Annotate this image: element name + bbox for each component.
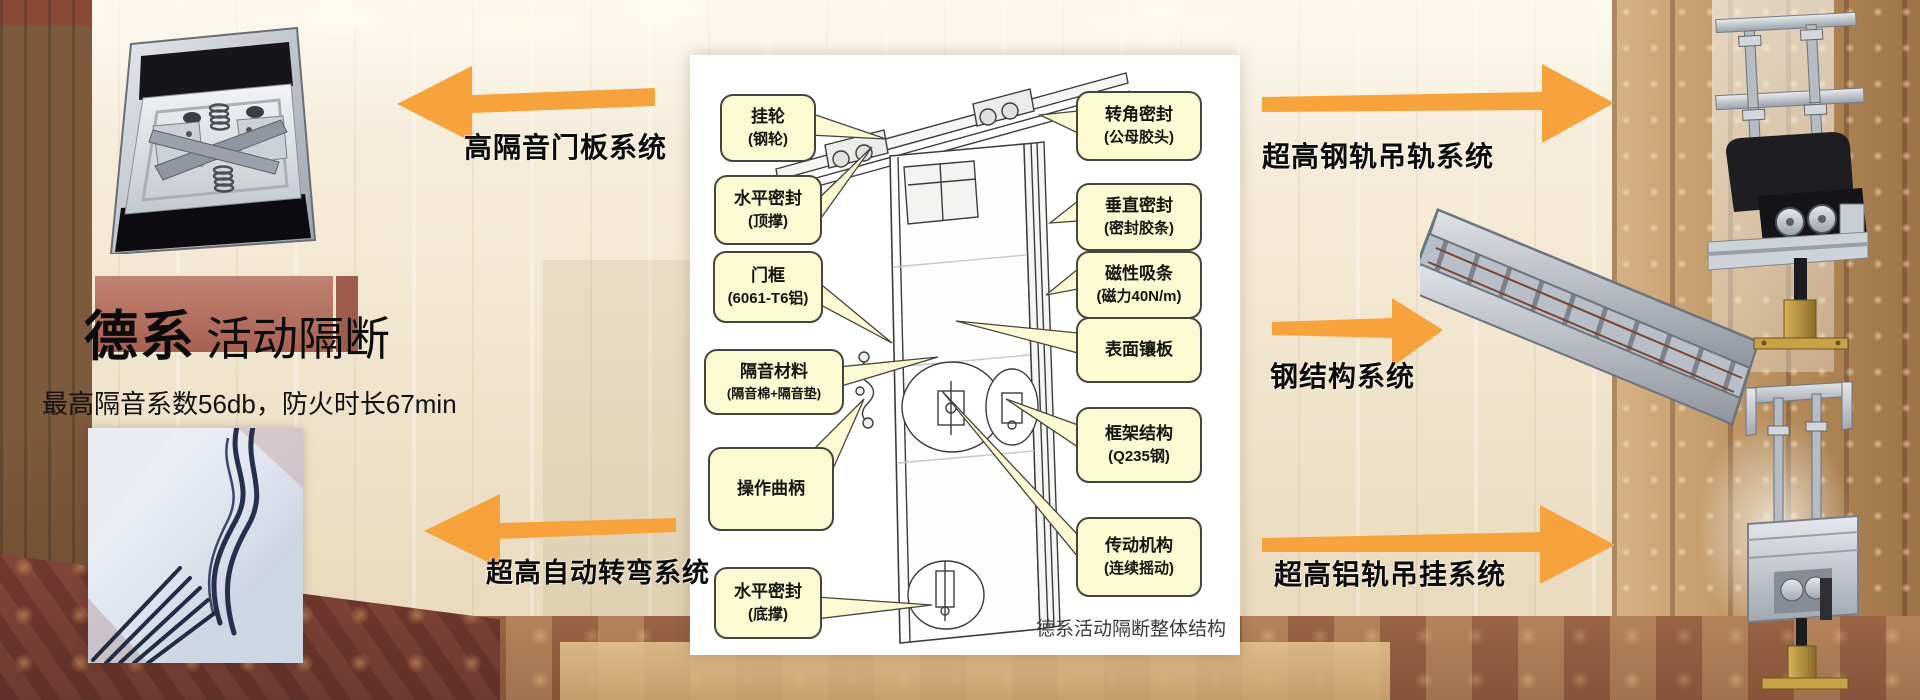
label-steel-rail-system: 超高钢轨吊轨系统 <box>1262 135 1494 175</box>
photo-curved-track <box>88 428 303 663</box>
callout-text: (底撑) <box>748 604 788 626</box>
callout-corner-seal: 转角密封 (公母胶头) <box>1076 91 1202 161</box>
callout-text: 框架结构 <box>1105 422 1173 447</box>
callout-text: 挂轮 <box>751 105 785 130</box>
callout-magnetic-strip: 磁性吸条 (磁力40N/m) <box>1076 251 1202 319</box>
partition-product-poster: 高隔音门板系统 超高自动转弯系统 超高钢轨吊轨系统 钢结构系统 超高铝轨吊挂系统… <box>0 0 1920 700</box>
callout-text: 垂直密封 <box>1105 194 1173 219</box>
callout-text: 水平密封 <box>734 187 802 212</box>
callout-text: 表面镶板 <box>1105 338 1173 363</box>
callout-text: (密封胶条) <box>1104 218 1174 240</box>
callout-hanging-wheel: 挂轮 (钢轮) <box>720 94 816 162</box>
callout-text: (钢轮) <box>748 129 788 151</box>
callout-horizontal-seal-bottom: 水平密封 (底撑) <box>714 567 822 639</box>
callout-door-frame: 门框 (6061-T6铝) <box>713 251 823 323</box>
label-door-panel-system: 高隔音门板系统 <box>464 126 667 166</box>
callout-text: (磁力40N/m) <box>1096 286 1181 308</box>
callout-text: (隔音棉+隔音垫) <box>727 385 821 404</box>
callout-transmission-mechanism: 传动机构 (连续摇动) <box>1076 517 1202 597</box>
callout-sound-insulation-material: 隔音材料 (隔音棉+隔音垫) <box>704 349 844 415</box>
label-auto-turn-system: 超高自动转弯系统 <box>486 551 710 590</box>
callout-operating-crank: 操作曲柄 <box>708 447 834 531</box>
callout-text: (顶撑) <box>748 211 788 233</box>
callout-text: (6061-T6铝) <box>728 288 809 310</box>
callout-text: 磁性吸条 <box>1105 262 1173 287</box>
callout-text: 水平密封 <box>734 580 802 605</box>
subtitle-specs: 最高隔音系数56db，防火时长67min <box>42 384 457 421</box>
callout-text: 传动机构 <box>1105 534 1173 559</box>
callout-text: 转角密封 <box>1105 103 1173 128</box>
callout-frame-structure: 框架结构 (Q235钢) <box>1076 407 1202 483</box>
photo-alu-rail-trolley <box>1728 382 1878 692</box>
callout-text: 门框 <box>751 264 785 289</box>
callout-text: 操作曲柄 <box>737 477 805 502</box>
callout-text: (连续摇动) <box>1104 558 1174 580</box>
product-name: 活动隔断 <box>206 303 390 369</box>
label-alu-rail-system: 超高铝轨吊挂系统 <box>1274 553 1506 593</box>
brand-name: 德系 <box>84 292 196 371</box>
callout-text: (Q235钢) <box>1108 446 1170 468</box>
callout-text: 隔音材料 <box>740 360 808 385</box>
callout-text: (公母胶头) <box>1104 127 1174 149</box>
diagram-caption: 德系活动隔断整体结构 <box>1036 614 1226 641</box>
callout-surface-panel: 表面镶板 <box>1076 317 1202 383</box>
page-title: 德系 活动隔断 <box>84 292 390 371</box>
label-steel-structure-system: 钢结构系统 <box>1270 355 1415 395</box>
photo-door-panel-mechanism <box>95 2 330 254</box>
structure-diagram-panel: 挂轮 (钢轮) 水平密封 (顶撑) 门框 (6061-T6铝) 隔音材料 (隔音… <box>690 55 1240 655</box>
callout-horizontal-seal-top: 水平密封 (顶撑) <box>714 175 822 245</box>
photo-steel-rail-trolley <box>1698 0 1878 350</box>
callout-vertical-seal: 垂直密封 (密封胶条) <box>1076 183 1202 251</box>
